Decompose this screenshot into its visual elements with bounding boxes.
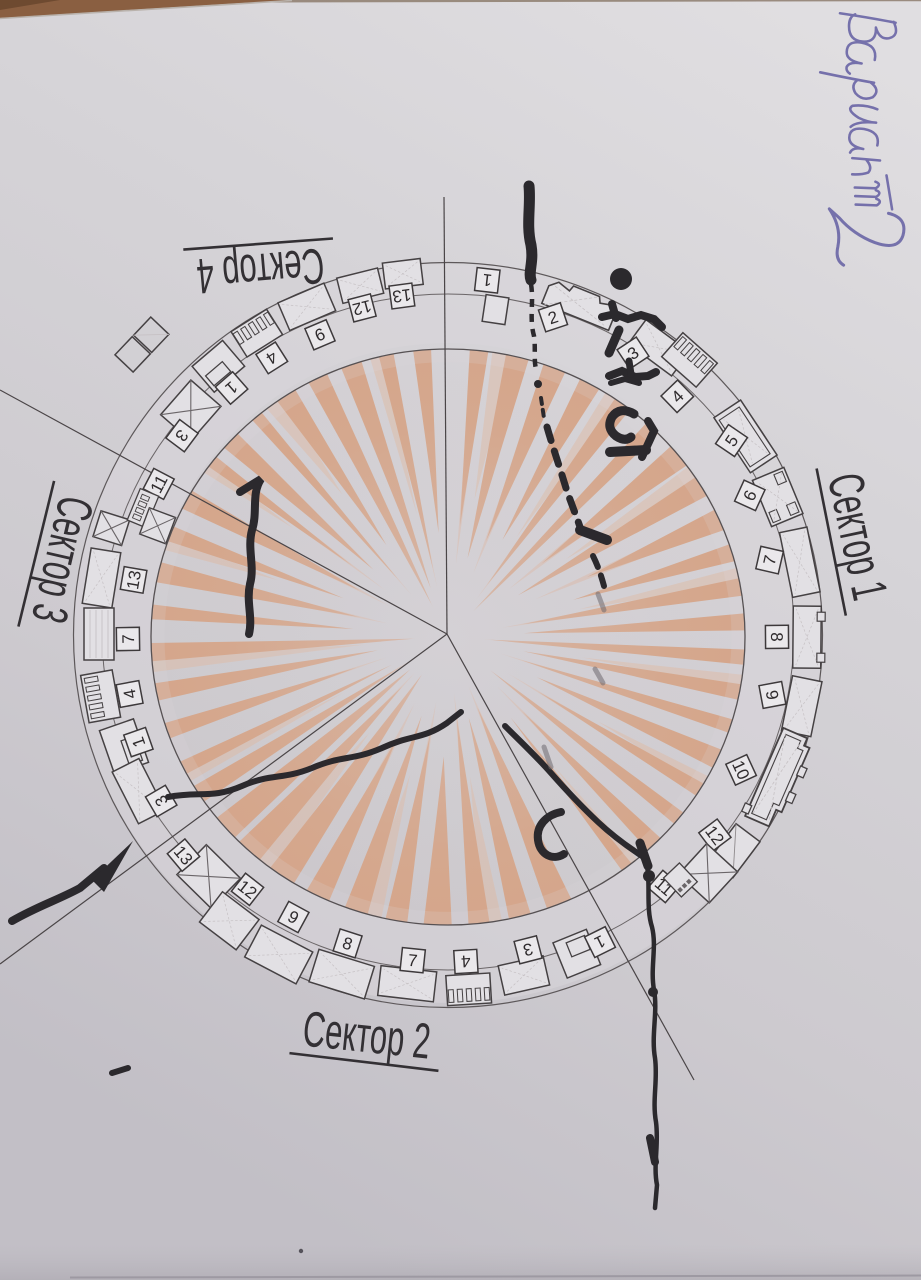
- svg-text:13: 13: [123, 569, 145, 591]
- svg-text:4: 4: [461, 951, 472, 971]
- svg-text:13: 13: [391, 285, 412, 306]
- svg-text:8: 8: [767, 632, 786, 642]
- svg-text:7: 7: [119, 634, 138, 644]
- svg-text:7: 7: [407, 951, 418, 971]
